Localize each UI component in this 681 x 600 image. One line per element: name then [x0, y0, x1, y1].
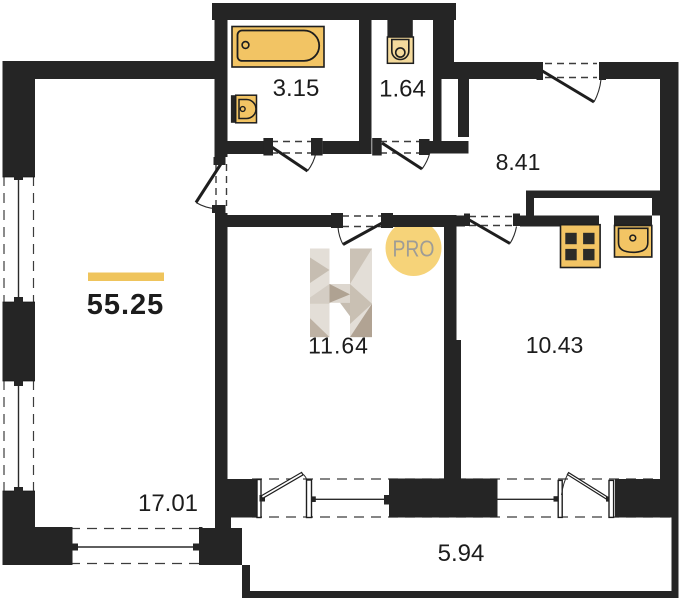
svg-text:PRO: PRO [393, 236, 435, 262]
svg-text:17.01: 17.01 [138, 490, 198, 517]
svg-text:1.64: 1.64 [379, 76, 426, 103]
svg-text:8.41: 8.41 [496, 149, 541, 175]
svg-text:55.25: 55.25 [87, 289, 165, 321]
svg-text:5.94: 5.94 [438, 540, 485, 567]
svg-text:3.15: 3.15 [273, 75, 320, 102]
svg-text:10.43: 10.43 [526, 332, 584, 358]
svg-text:11.64: 11.64 [308, 333, 369, 359]
